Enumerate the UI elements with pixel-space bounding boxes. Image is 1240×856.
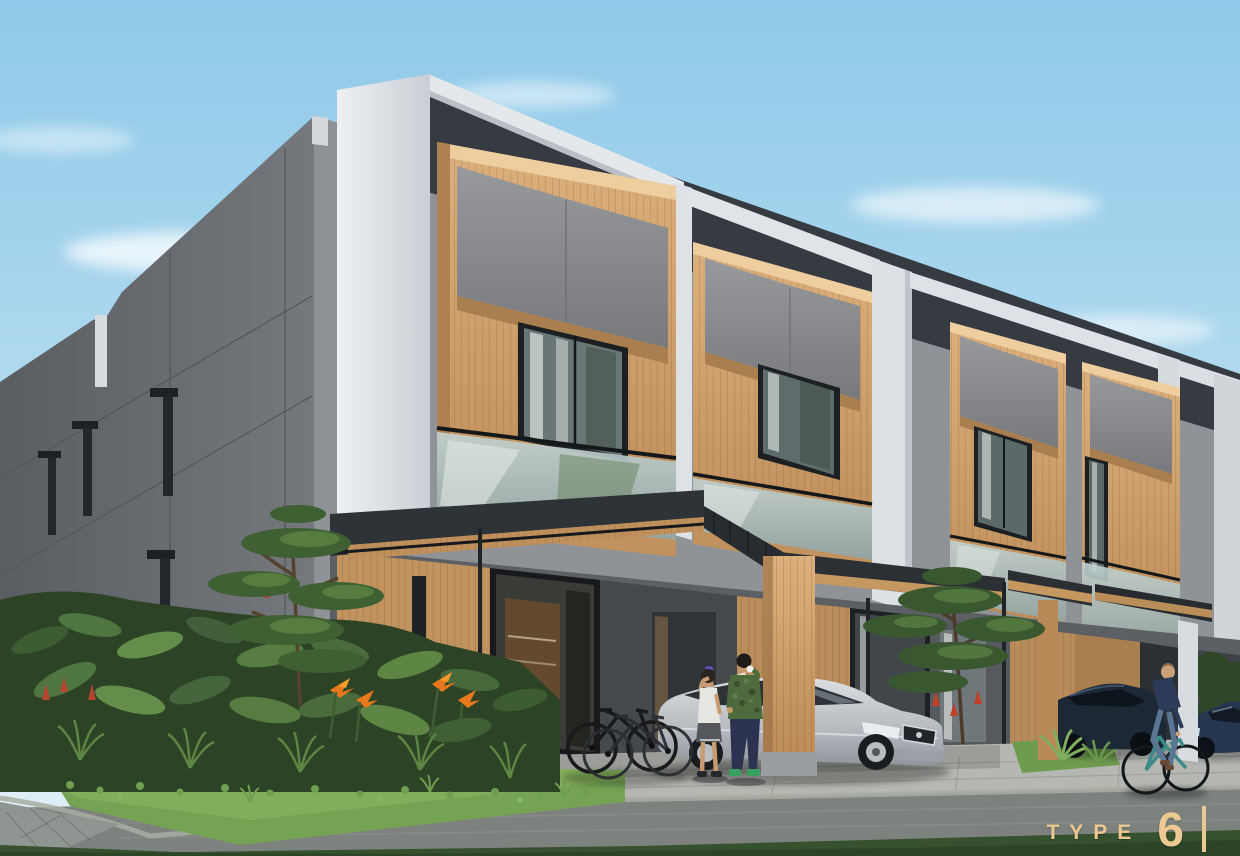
render-canvas: TYPE 6 |	[0, 0, 1240, 856]
unit-divider-mullion	[674, 182, 692, 540]
pillar-concrete-base	[761, 752, 817, 776]
green-shoe	[747, 769, 760, 776]
type-label-number: 6	[1157, 810, 1184, 852]
type-label-prefix: TYPE	[1046, 821, 1141, 852]
architectural-render	[0, 0, 1240, 856]
parapet-cap	[95, 315, 107, 387]
canopy-post	[1002, 582, 1006, 746]
grey-shorts	[696, 723, 722, 742]
wall-cap	[312, 116, 328, 146]
end-wall	[1214, 374, 1240, 660]
type-label: TYPE 6 |	[1046, 806, 1206, 852]
type-label-divider	[1202, 806, 1206, 852]
carport-wood-pillar	[761, 556, 817, 776]
unit-3-window	[974, 426, 1032, 542]
green-shoe	[729, 769, 741, 776]
portal-pillar-1	[337, 74, 430, 548]
